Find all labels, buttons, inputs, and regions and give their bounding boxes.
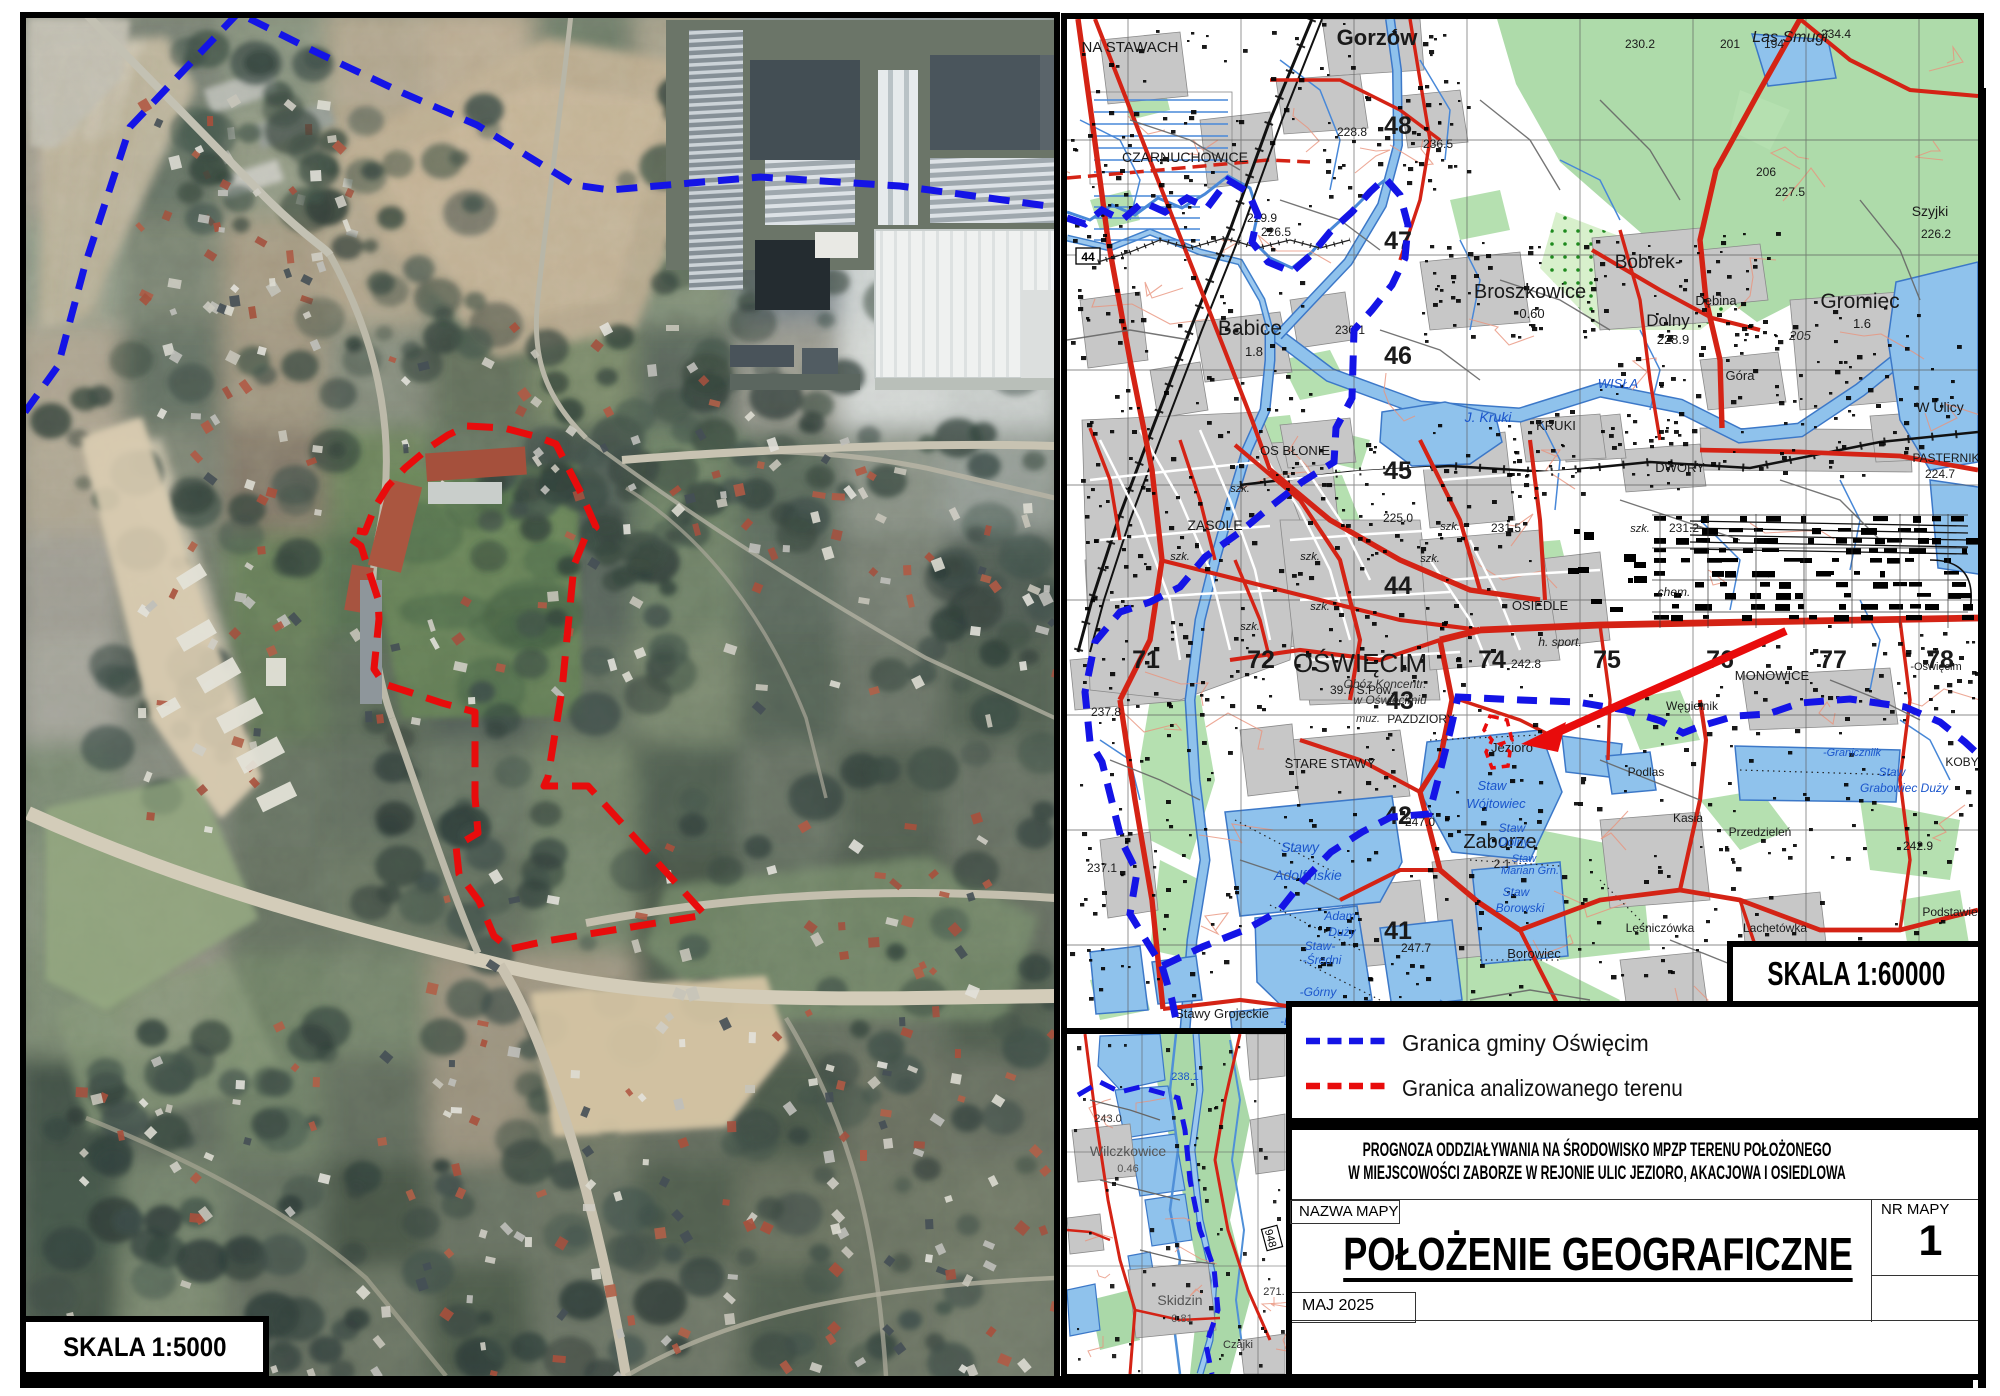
svg-text:Lachetówka: Lachetówka: [1743, 921, 1807, 935]
svg-text:Wójtowiec: Wójtowiec: [1466, 796, 1526, 811]
svg-text:194: 194: [1764, 37, 1784, 51]
svg-text:chem.: chem.: [1658, 585, 1691, 599]
svg-text:243.0: 243.0: [1094, 1113, 1122, 1125]
svg-text:Dębina: Dębina: [1695, 293, 1737, 308]
svg-text:J. Kruki: J. Kruki: [1464, 409, 1513, 425]
svg-text:206: 206: [1756, 165, 1776, 179]
svg-text:43: 43: [1386, 687, 1414, 715]
svg-text:PASTERNIK: PASTERNIK: [1912, 451, 1978, 465]
svg-text:229.9: 229.9: [1247, 211, 1277, 225]
svg-text:WISŁA: WISŁA: [1598, 376, 1638, 391]
svg-text:227.5: 227.5: [1775, 185, 1805, 199]
svg-text:72: 72: [1247, 646, 1275, 674]
svg-text:NA STAWACH: NA STAWACH: [1082, 39, 1179, 56]
svg-text:OSIEDLE: OSIEDLE: [1512, 598, 1569, 613]
svg-text:Góra: Góra: [1726, 368, 1756, 383]
svg-text:szk.: szk.: [1630, 523, 1650, 535]
svg-text:0.81: 0.81: [1171, 1313, 1192, 1325]
svg-text:230.2: 230.2: [1625, 37, 1655, 51]
svg-text:szk.: szk.: [1170, 551, 1190, 563]
svg-text:Broszkowice: Broszkowice: [1474, 281, 1586, 303]
svg-text:ZASOLE: ZASOLE: [1187, 517, 1242, 533]
svg-text:-Średni: -Średni: [1303, 952, 1342, 967]
svg-text:242.9: 242.9: [1903, 839, 1933, 853]
svg-text:237.8: 237.8: [1091, 705, 1121, 719]
svg-text:45: 45: [1384, 457, 1412, 485]
svg-text:0.46: 0.46: [1117, 1163, 1138, 1175]
svg-text:242.8: 242.8: [1511, 657, 1541, 671]
svg-text:szk.: szk.: [1230, 483, 1250, 495]
svg-text:OŚWIĘCIM: OŚWIĘCIM: [1293, 648, 1427, 678]
svg-text:271.: 271.: [1263, 1286, 1284, 1298]
svg-text:Czajki: Czajki: [1223, 1339, 1253, 1351]
svg-text:muz.: muz.: [1356, 713, 1380, 725]
svg-text:KOBY: KOBY: [1945, 755, 1978, 769]
svg-text:Bobrek-: Bobrek-: [1615, 252, 1682, 273]
svg-text:Grabowiec Duży: Grabowiec Duży: [1860, 781, 1949, 795]
svg-text:Podlas: Podlas: [1628, 765, 1665, 779]
svg-text:Borowiec: Borowiec: [1507, 946, 1561, 961]
svg-text:78: 78: [1926, 646, 1954, 674]
svg-text:75: 75: [1593, 646, 1621, 674]
svg-text:Węgielnik: Węgielnik: [1666, 699, 1719, 713]
svg-text:Skidzin: Skidzin: [1157, 1292, 1202, 1308]
svg-text:Stawy: Stawy: [1281, 839, 1320, 855]
svg-text:1.8: 1.8: [1245, 344, 1263, 359]
svg-text:Podstawie: Podstawie: [1922, 905, 1978, 919]
svg-text:Kasia: Kasia: [1673, 811, 1703, 825]
svg-text:Szyjki: Szyjki: [1912, 203, 1949, 219]
svg-text:226.2: 226.2: [1921, 227, 1951, 241]
svg-text:71: 71: [1132, 646, 1160, 674]
svg-text:Gorzów: Gorzów: [1337, 25, 1419, 50]
svg-text:-Górny: -Górny: [1300, 985, 1338, 999]
svg-text:44: 44: [1081, 250, 1095, 264]
svg-text:Adam: Adam: [1323, 909, 1355, 923]
svg-text:230.1: 230.1: [1335, 323, 1365, 337]
svg-text:228.8: 228.8: [1337, 125, 1367, 139]
svg-text:Borowski: Borowski: [1496, 901, 1545, 915]
svg-text:Stawy Grojeckie: Stawy Grojeckie: [1175, 1006, 1269, 1021]
svg-text:205: 205: [1788, 328, 1811, 343]
svg-text:szk.: szk.: [1300, 551, 1320, 563]
svg-text:Staw: Staw: [1879, 765, 1907, 779]
svg-text:1.6: 1.6: [1853, 316, 1871, 331]
svg-text:KRUKI: KRUKI: [1536, 418, 1576, 433]
svg-text:Wilczkowice: Wilczkowice: [1090, 1143, 1166, 1159]
svg-text:48: 48: [1384, 112, 1412, 140]
svg-text:h. sport.: h. sport.: [1538, 635, 1581, 649]
svg-text:44: 44: [1384, 572, 1412, 600]
svg-text:Dolny: Dolny: [1646, 311, 1690, 330]
svg-text:DWORY: DWORY: [1655, 460, 1705, 475]
svg-text:szk.: szk.: [1440, 521, 1460, 533]
svg-text:Gromiec: Gromiec: [1820, 290, 1899, 313]
svg-text:236.5: 236.5: [1423, 137, 1453, 151]
svg-text:74: 74: [1478, 646, 1506, 674]
svg-text:OS BŁONIE: OS BŁONIE: [1260, 443, 1330, 458]
svg-text:Leśniczówka: Leśniczówka: [1626, 921, 1695, 935]
svg-text:Staw-: Staw-: [1305, 939, 1336, 953]
svg-text:231.5: 231.5: [1491, 521, 1521, 535]
svg-text:Babice: Babice: [1218, 317, 1282, 340]
svg-text:225.0: 225.0: [1383, 511, 1413, 525]
svg-text:szk.: szk.: [1420, 553, 1440, 565]
svg-text:CZARNUCHOWICE: CZARNUCHOWICE: [1122, 149, 1248, 165]
svg-text:0.60: 0.60: [1519, 306, 1544, 321]
svg-text:szk.: szk.: [1240, 621, 1260, 633]
svg-text:-Graniczniik: -Graniczniik: [1823, 747, 1882, 759]
svg-text:Marian Grn.: Marian Grn.: [1501, 865, 1559, 877]
svg-text:STARE STAWY: STARE STAWY: [1285, 756, 1376, 771]
svg-text:Staw: Staw: [1478, 778, 1509, 793]
svg-text:szk.: szk.: [1310, 601, 1330, 613]
svg-text:238.1: 238.1: [1171, 1071, 1199, 1083]
svg-text:Staw: Staw: [1512, 853, 1538, 865]
svg-text:201: 201: [1720, 37, 1740, 51]
svg-text:77: 77: [1819, 646, 1847, 674]
svg-text:247.7: 247.7: [1401, 941, 1431, 955]
svg-text:46: 46: [1384, 342, 1412, 370]
svg-text:231.2: 231.2: [1669, 521, 1699, 535]
svg-text:Dolny: Dolny: [1499, 835, 1531, 849]
svg-text:237.1: 237.1: [1087, 861, 1117, 875]
svg-text:Duży: Duży: [1328, 925, 1356, 939]
svg-text:228.9: 228.9: [1657, 332, 1690, 347]
svg-text:Staw: Staw: [1499, 821, 1527, 835]
svg-text:W Ulicy: W Ulicy: [1916, 399, 1963, 415]
svg-text:Staw: Staw: [1503, 885, 1531, 899]
svg-text:234.4: 234.4: [1821, 27, 1851, 41]
svg-text:226.5: 226.5: [1261, 225, 1291, 239]
svg-text:Obóz Koncentr.: Obóz Koncentr.: [1344, 677, 1427, 691]
svg-text:224.7: 224.7: [1925, 467, 1955, 481]
svg-text:Przedzieleń: Przedzieleń: [1729, 825, 1792, 839]
svg-text:MONOWICE: MONOWICE: [1735, 668, 1810, 683]
